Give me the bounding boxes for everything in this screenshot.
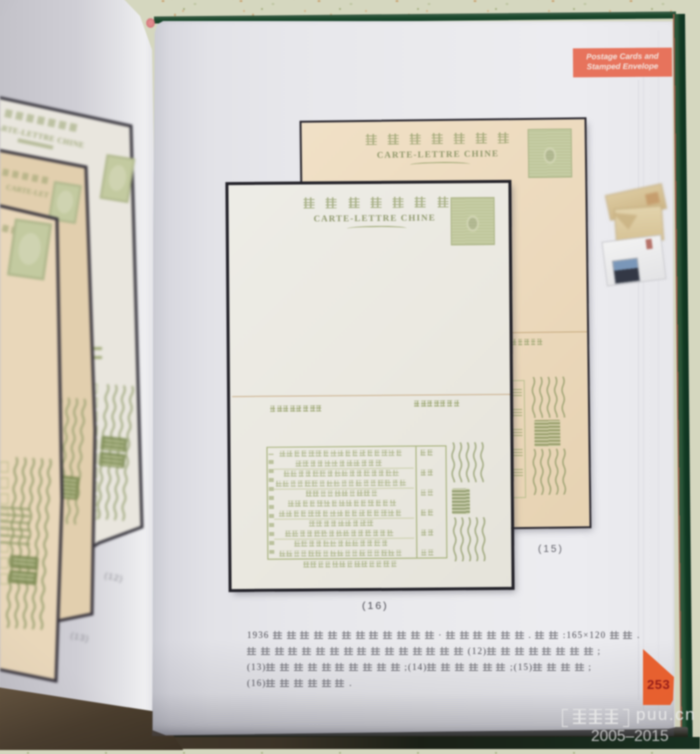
svg-text:(13): (13) <box>70 630 91 644</box>
svg-text:(12): (12) <box>104 570 125 584</box>
